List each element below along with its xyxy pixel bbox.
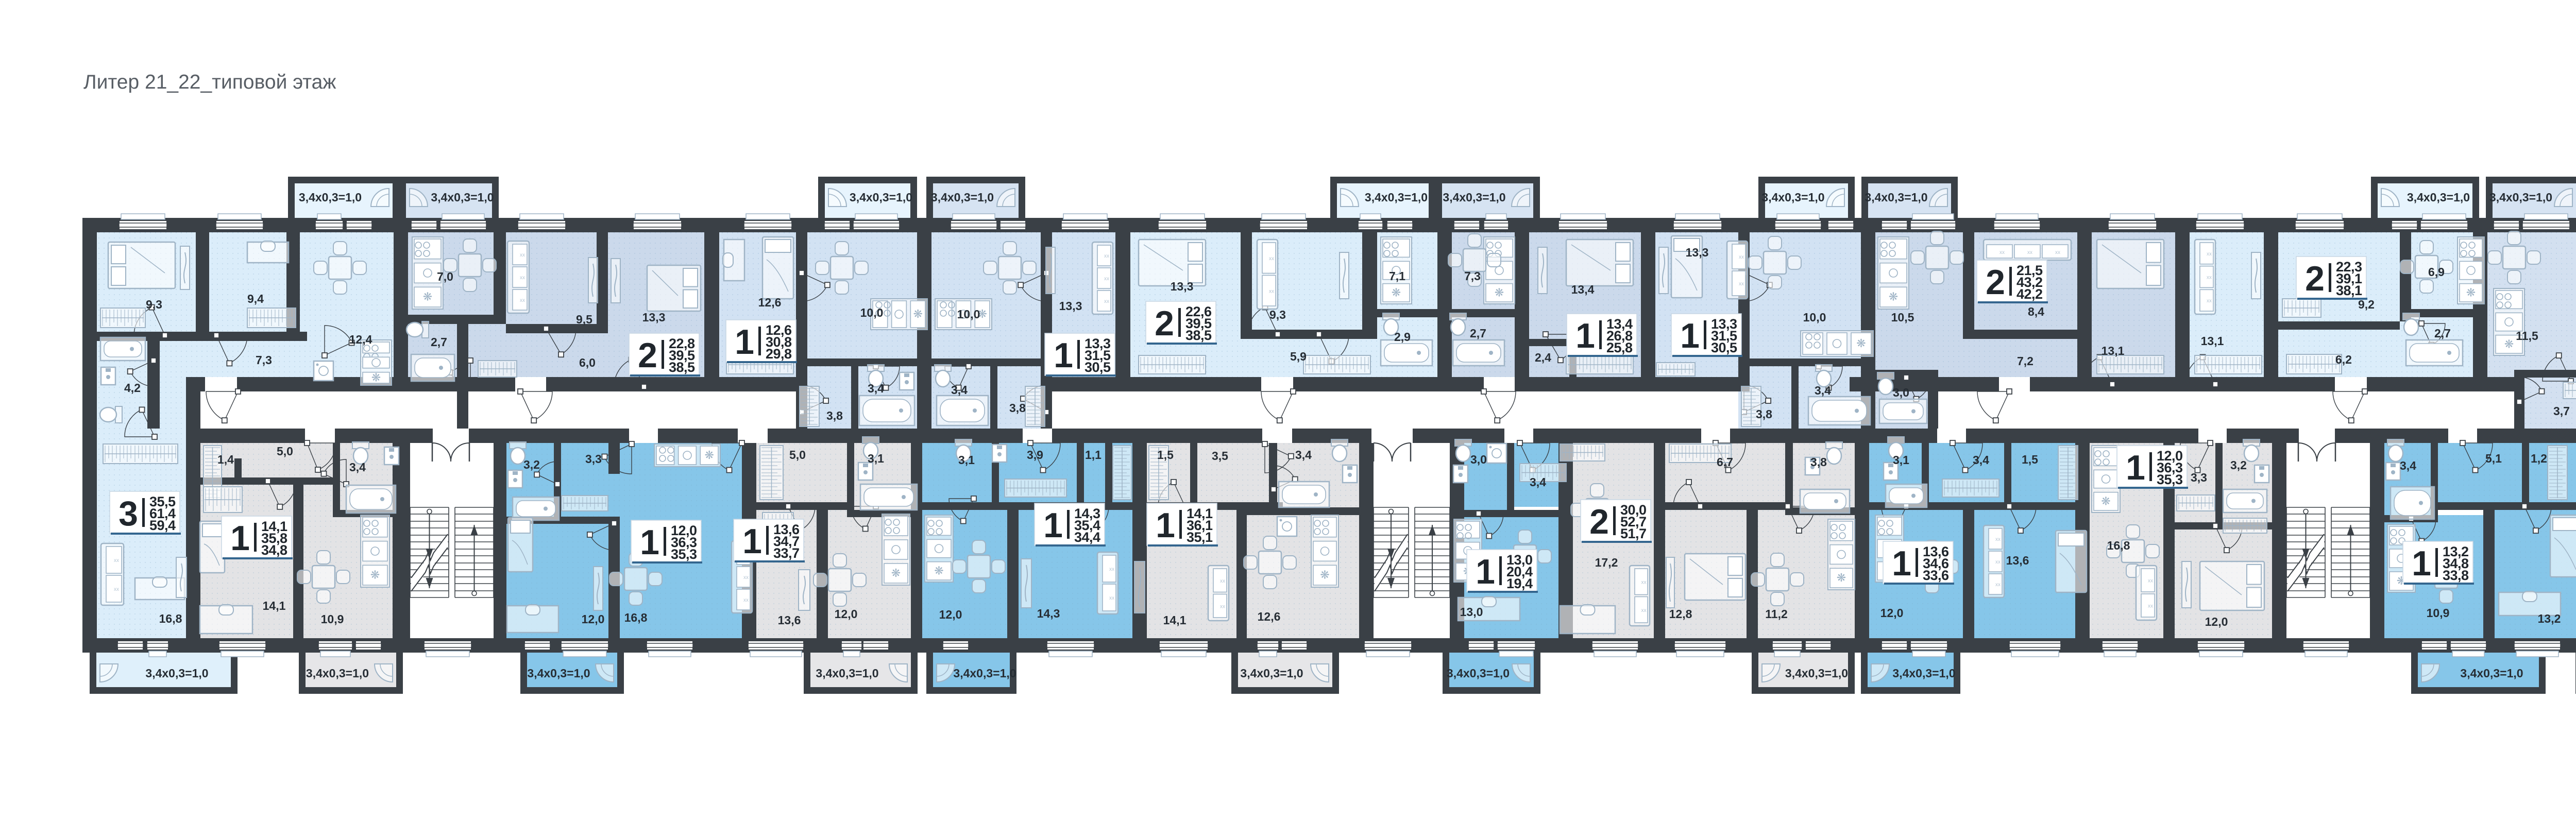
svg-text:2,7: 2,7 (1470, 327, 1486, 340)
svg-text:3,4: 3,4 (1973, 453, 1989, 467)
svg-text:1: 1 (1043, 506, 1063, 545)
svg-text:6,2: 6,2 (2335, 353, 2352, 366)
svg-text:16,8: 16,8 (159, 612, 182, 625)
svg-text:7,1: 7,1 (1389, 269, 1405, 283)
svg-text:❋: ❋ (1392, 286, 1401, 299)
svg-text:❋: ❋ (891, 567, 901, 579)
svg-text:33,8: 33,8 (2443, 568, 2469, 583)
svg-text:1: 1 (230, 519, 250, 558)
svg-text:xx: xx (1641, 608, 1647, 613)
svg-text:xx: xx (2207, 275, 2212, 281)
svg-text:12,0: 12,0 (582, 612, 605, 626)
svg-text:3,4: 3,4 (1815, 384, 1831, 397)
svg-text:xx: xx (1109, 567, 1114, 572)
svg-text:xx: xx (1269, 256, 1274, 262)
svg-text:2: 2 (638, 336, 657, 375)
svg-text:3,8: 3,8 (1009, 401, 1026, 415)
svg-text:7,0: 7,0 (437, 270, 453, 283)
svg-text:❋: ❋ (371, 371, 381, 384)
svg-text:xx: xx (2055, 250, 2060, 255)
svg-text:xx: xx (1641, 579, 1647, 585)
svg-text:❋: ❋ (1889, 291, 1898, 303)
svg-text:14,3: 14,3 (1037, 607, 1060, 620)
svg-text:12,0: 12,0 (2205, 615, 2228, 628)
svg-text:xx: xx (1104, 276, 1109, 282)
svg-text:3,0: 3,0 (1893, 386, 1909, 399)
svg-text:3,8: 3,8 (1756, 407, 1772, 421)
svg-text:6,0: 6,0 (579, 356, 596, 369)
svg-text:2,4: 2,4 (1535, 351, 1551, 364)
svg-text:xx: xx (1995, 582, 2001, 588)
svg-text:3,4x0,3=1,0: 3,4x0,3=1,0 (1240, 667, 1303, 680)
svg-text:2,7: 2,7 (431, 335, 447, 349)
svg-text:xx: xx (1220, 604, 1225, 609)
svg-text:3,4: 3,4 (868, 382, 884, 395)
svg-text:2: 2 (1589, 502, 1609, 541)
svg-text:25,8: 25,8 (1606, 340, 1633, 355)
svg-text:12,4: 12,4 (349, 333, 372, 346)
svg-text:3,7: 3,7 (2553, 404, 2570, 418)
svg-text:❋: ❋ (2101, 494, 2110, 507)
svg-text:11,5: 11,5 (2516, 329, 2538, 343)
svg-text:3,4x0,3=1,0: 3,4x0,3=1,0 (850, 191, 912, 204)
svg-text:1,2: 1,2 (2531, 452, 2547, 465)
svg-text:33,7: 33,7 (773, 545, 800, 561)
svg-text:3,4: 3,4 (951, 383, 968, 397)
svg-text:7,2: 7,2 (2017, 354, 2033, 368)
svg-text:❋: ❋ (913, 308, 922, 320)
svg-text:6,9: 6,9 (2428, 265, 2445, 279)
svg-text:3,1: 3,1 (1893, 453, 1909, 467)
svg-text:13,3: 13,3 (1171, 280, 1194, 293)
svg-text:3,4x0,3=1,0: 3,4x0,3=1,0 (1447, 667, 1510, 680)
svg-text:11,2: 11,2 (1765, 607, 1788, 621)
svg-text:1,4: 1,4 (217, 453, 234, 466)
svg-text:1: 1 (640, 523, 659, 562)
svg-text:xx: xx (1220, 578, 1225, 584)
svg-text:9,5: 9,5 (576, 313, 592, 326)
svg-text:3,9: 3,9 (1027, 448, 1043, 462)
svg-text:35,1: 35,1 (1187, 529, 1213, 545)
svg-text:10,9: 10,9 (2427, 606, 2450, 620)
svg-text:3,0: 3,0 (1470, 453, 1487, 466)
svg-text:13,2: 13,2 (2538, 612, 2561, 625)
svg-text:1: 1 (1575, 316, 1595, 355)
svg-text:3,4x0,3=1,0: 3,4x0,3=1,0 (2489, 191, 2552, 204)
svg-text:13,0: 13,0 (1460, 605, 1483, 619)
svg-text:12,6: 12,6 (758, 296, 782, 309)
svg-text:1: 1 (1892, 544, 1911, 583)
svg-text:❋: ❋ (1837, 571, 1846, 584)
svg-text:❋: ❋ (1856, 337, 1866, 350)
svg-text:1: 1 (735, 322, 754, 362)
svg-text:12,0: 12,0 (939, 608, 962, 621)
svg-text:9,3: 9,3 (146, 298, 162, 311)
svg-text:3,4x0,3=1,0: 3,4x0,3=1,0 (1865, 191, 1927, 204)
svg-text:7,3: 7,3 (256, 353, 272, 367)
svg-text:42,2: 42,2 (2016, 286, 2043, 302)
svg-text:10,0: 10,0 (957, 308, 980, 321)
svg-text:13,6: 13,6 (2006, 554, 2029, 567)
svg-text:2,9: 2,9 (1394, 330, 1411, 344)
svg-text:1,5: 1,5 (1157, 448, 1174, 462)
svg-text:3,5: 3,5 (1212, 449, 1228, 463)
svg-text:3,4: 3,4 (1295, 448, 1312, 462)
svg-text:19,4: 19,4 (1506, 576, 1533, 591)
svg-text:13,1: 13,1 (2102, 344, 2125, 357)
svg-text:xx: xx (1109, 595, 1114, 601)
svg-text:6,7: 6,7 (1717, 455, 1733, 469)
svg-text:xx: xx (1104, 253, 1109, 259)
svg-text:❋: ❋ (370, 569, 380, 582)
svg-text:3,4x0,3=1,0: 3,4x0,3=1,0 (306, 667, 369, 680)
svg-text:1,5: 1,5 (2022, 453, 2038, 466)
svg-text:4,2: 4,2 (124, 381, 141, 395)
svg-text:13,3: 13,3 (1059, 299, 1082, 313)
svg-text:3,4x0,3=1,0: 3,4x0,3=1,0 (431, 191, 494, 204)
svg-text:13,3: 13,3 (1686, 246, 1709, 259)
svg-text:3,8: 3,8 (1810, 455, 1827, 469)
svg-text:3,1: 3,1 (958, 453, 975, 467)
svg-text:xx: xx (2027, 250, 2032, 255)
svg-text:3,4x0,3=1,0: 3,4x0,3=1,0 (1892, 667, 1955, 680)
svg-text:2: 2 (2305, 259, 2325, 298)
svg-text:9,3: 9,3 (1269, 308, 1286, 321)
svg-text:12,6: 12,6 (1258, 610, 1281, 623)
svg-text:51,7: 51,7 (1620, 526, 1647, 541)
svg-text:3,4x0,3=1,0: 3,4x0,3=1,0 (299, 191, 362, 204)
svg-text:3,3: 3,3 (585, 452, 602, 466)
svg-text:xx: xx (1269, 288, 1274, 294)
svg-text:❋: ❋ (2504, 337, 2514, 350)
svg-text:1: 1 (1680, 316, 1700, 355)
svg-text:3,4x0,3=1,0: 3,4x0,3=1,0 (527, 667, 590, 680)
svg-text:xx: xx (1739, 281, 1744, 287)
svg-text:1: 1 (742, 522, 762, 561)
svg-text:3,4x0,3=1,0: 3,4x0,3=1,0 (1443, 191, 1505, 204)
svg-text:5,1: 5,1 (2485, 452, 2502, 465)
svg-text:5,9: 5,9 (1290, 350, 1307, 363)
svg-text:xx: xx (520, 298, 525, 303)
svg-text:xx: xx (2207, 251, 2212, 257)
svg-text:❋: ❋ (1320, 569, 1329, 582)
svg-text:10,5: 10,5 (1891, 311, 1914, 324)
svg-text:14,1: 14,1 (1163, 613, 1187, 627)
svg-text:17,2: 17,2 (1595, 556, 1618, 569)
svg-text:35,3: 35,3 (2157, 472, 2183, 487)
svg-text:❋: ❋ (2466, 286, 2476, 299)
svg-text:❋: ❋ (704, 449, 714, 462)
svg-text:12,0: 12,0 (1880, 606, 1904, 620)
svg-text:xx: xx (1999, 250, 2005, 255)
svg-text:1: 1 (2126, 448, 2145, 487)
svg-text:3,4x0,3=1,0: 3,4x0,3=1,0 (145, 667, 208, 680)
svg-text:38,5: 38,5 (1185, 328, 1212, 343)
svg-text:2: 2 (1986, 263, 2005, 302)
svg-text:7,3: 7,3 (1464, 269, 1481, 283)
svg-text:13,4: 13,4 (1571, 283, 1595, 296)
svg-text:13,6: 13,6 (778, 613, 801, 627)
svg-text:35,3: 35,3 (671, 546, 697, 562)
svg-text:❋: ❋ (1495, 286, 1504, 299)
svg-text:3,8: 3,8 (826, 409, 843, 422)
svg-text:3,4x0,3=1,0: 3,4x0,3=1,0 (1761, 191, 1824, 204)
svg-text:1: 1 (1054, 336, 1073, 375)
svg-text:Литер 21_22_типовой этаж: Литер 21_22_типовой этаж (83, 71, 336, 93)
svg-text:5,0: 5,0 (789, 448, 806, 462)
svg-text:xx: xx (520, 252, 525, 258)
svg-text:38,5: 38,5 (669, 360, 695, 375)
svg-text:10,0: 10,0 (1803, 311, 1826, 324)
svg-text:5,0: 5,0 (277, 445, 293, 458)
svg-text:xx: xx (114, 587, 119, 592)
svg-text:3,2: 3,2 (523, 458, 540, 471)
svg-text:1: 1 (1476, 552, 1495, 591)
svg-text:8,4: 8,4 (2028, 305, 2044, 318)
svg-text:3,4x0,3=1,0: 3,4x0,3=1,0 (953, 667, 1016, 680)
svg-text:34,8: 34,8 (261, 542, 287, 558)
svg-text:xx: xx (2148, 578, 2153, 584)
svg-text:10,9: 10,9 (321, 612, 344, 626)
svg-text:14,1: 14,1 (263, 599, 286, 612)
svg-text:xx: xx (743, 597, 749, 603)
svg-text:3,4: 3,4 (2400, 459, 2416, 472)
svg-text:3,4x0,3=1,0: 3,4x0,3=1,0 (2460, 667, 2523, 680)
svg-text:1: 1 (2412, 544, 2431, 583)
svg-text:3,2: 3,2 (2230, 458, 2247, 472)
svg-text:❋: ❋ (423, 291, 432, 303)
svg-text:29,8: 29,8 (766, 346, 792, 362)
svg-text:1: 1 (1156, 506, 1175, 545)
svg-text:12,0: 12,0 (835, 607, 858, 621)
svg-text:3,4x0,3=1,0: 3,4x0,3=1,0 (816, 667, 878, 680)
svg-text:2,7: 2,7 (2434, 327, 2451, 340)
svg-text:59,4: 59,4 (149, 518, 176, 533)
svg-text:38,1: 38,1 (2336, 283, 2362, 298)
svg-text:30,5: 30,5 (1084, 360, 1111, 375)
svg-text:xx: xx (1104, 299, 1109, 304)
svg-text:xx: xx (114, 558, 119, 563)
svg-text:3,1: 3,1 (868, 452, 884, 465)
svg-text:3,3: 3,3 (2191, 471, 2207, 484)
svg-text:xx: xx (743, 575, 749, 580)
svg-text:9,2: 9,2 (2358, 298, 2375, 311)
svg-text:xx: xx (2207, 298, 2212, 304)
svg-text:xx: xx (520, 275, 525, 281)
svg-text:34,4: 34,4 (1074, 529, 1100, 545)
svg-text:3,4: 3,4 (1530, 475, 1546, 489)
svg-text:1,1: 1,1 (1085, 448, 1101, 462)
svg-text:3,4x0,3=1,0: 3,4x0,3=1,0 (1785, 667, 1848, 680)
svg-text:13,3: 13,3 (642, 311, 666, 324)
svg-text:3: 3 (118, 494, 138, 533)
svg-text:3,4: 3,4 (349, 460, 366, 474)
svg-text:9,4: 9,4 (247, 292, 264, 305)
svg-text:xx: xx (1739, 254, 1744, 260)
svg-text:3,4x0,3=1,0: 3,4x0,3=1,0 (2407, 191, 2470, 204)
svg-text:3,4x0,3=1,0: 3,4x0,3=1,0 (1365, 191, 1428, 204)
svg-text:❋: ❋ (934, 564, 943, 577)
svg-text:16,8: 16,8 (624, 611, 648, 624)
svg-text:xx: xx (1995, 537, 2001, 542)
svg-text:16,8: 16,8 (2107, 539, 2130, 552)
svg-text:12,8: 12,8 (1669, 607, 1692, 621)
svg-text:xx: xx (1995, 559, 2001, 565)
svg-text:30,5: 30,5 (1711, 340, 1737, 355)
svg-text:10,0: 10,0 (860, 306, 884, 319)
svg-text:2: 2 (1155, 304, 1174, 343)
svg-text:13,1: 13,1 (2201, 334, 2224, 348)
svg-text:33,6: 33,6 (1923, 568, 1949, 583)
svg-text:3,4x0,3=1,0: 3,4x0,3=1,0 (931, 191, 994, 204)
svg-text:xx: xx (2148, 604, 2153, 609)
